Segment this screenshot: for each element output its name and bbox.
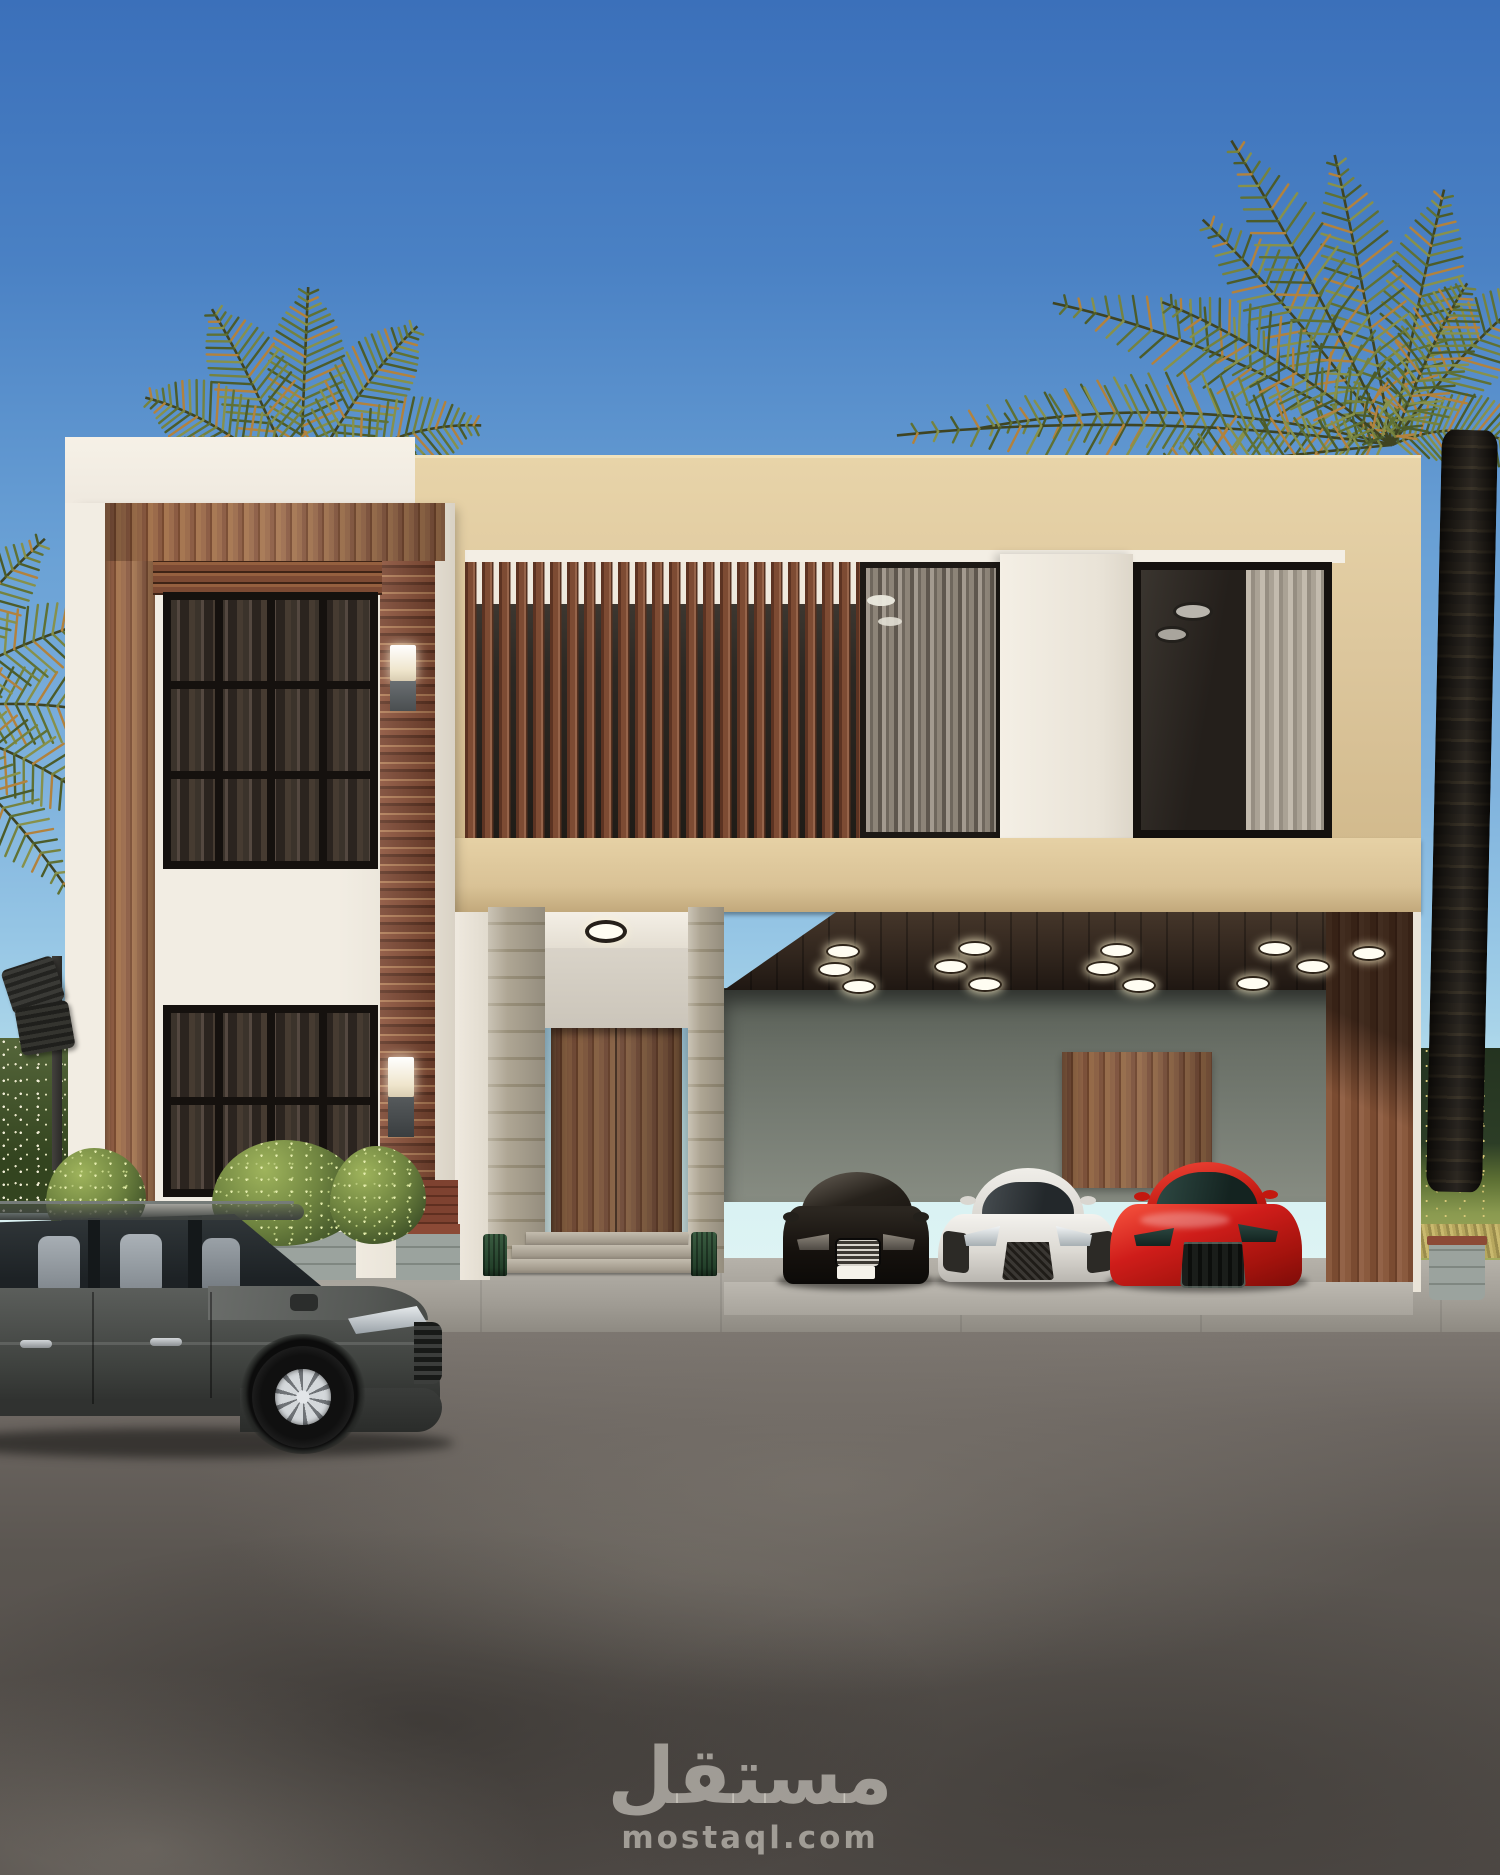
sconce-bracket [388, 1097, 414, 1137]
side-mirror [960, 1196, 976, 1205]
watermark: مستقل mostaql.com [0, 1738, 1500, 1856]
garage-ceiling-light [1122, 978, 1156, 993]
trash-bin-right [691, 1232, 717, 1276]
car-white [938, 1168, 1118, 1290]
sconce-bracket [390, 681, 416, 711]
bedroom-window [1133, 562, 1332, 838]
suv-seat [120, 1234, 162, 1296]
garage-ceiling-light [1086, 961, 1120, 976]
ceiling-lamp-glow [878, 617, 902, 626]
stone-planter [1427, 1236, 1487, 1300]
suv-door-line [92, 1292, 94, 1404]
suv-grille [414, 1322, 442, 1384]
side-mirror [1262, 1190, 1278, 1199]
suv-front-wheel [252, 1346, 354, 1448]
ceiling-lamp-glow [867, 595, 895, 606]
suv-roof [0, 1204, 304, 1220]
wood-slat-screen [465, 562, 862, 838]
entry-step-1 [526, 1232, 688, 1245]
suv-mirror [290, 1294, 318, 1311]
entrance-side-wall [455, 912, 490, 1280]
door-split-line [615, 1028, 617, 1232]
car-red [1110, 1162, 1302, 1291]
ceiling-lamp [1155, 626, 1189, 643]
side-mirror [913, 1212, 929, 1222]
garage-ceiling-light [1236, 976, 1270, 991]
car-grille [1180, 1242, 1246, 1288]
garage-ceiling-light [818, 962, 852, 977]
garage-ceiling-light [1296, 959, 1330, 974]
trash-bin-left [483, 1234, 507, 1276]
tower-window-upper [163, 592, 378, 869]
car-black [783, 1172, 929, 1290]
garage-ceiling-light [968, 977, 1002, 992]
stone-pillar-left [488, 907, 545, 1273]
wall-sconce [390, 645, 416, 681]
window-curtain [1246, 570, 1324, 830]
upper-floor [415, 455, 1421, 912]
license-plate [837, 1266, 875, 1279]
suv-shadow [0, 1428, 454, 1458]
garage-ceiling-light [958, 941, 992, 956]
wood-frame-top [105, 503, 445, 561]
car-grille [835, 1238, 881, 1268]
entry-step-3 [498, 1259, 712, 1273]
slat-band [153, 561, 382, 595]
planter-brick-rim [1427, 1236, 1487, 1245]
side-mirror [1134, 1192, 1150, 1201]
watermark-site-text: mostaql.com [0, 1820, 1500, 1856]
floor-slab-band [415, 838, 1421, 912]
entrance [455, 912, 724, 1280]
garage-ceiling-light [826, 944, 860, 959]
suv-door-line [210, 1292, 212, 1398]
garage-ceiling-light [1258, 941, 1292, 956]
garage [724, 912, 1413, 1315]
ceiling-lamp [1173, 602, 1213, 621]
suv-roof-rail [0, 1201, 294, 1204]
garage-ceiling-light [842, 979, 876, 994]
garage-ceiling-light [1352, 946, 1386, 961]
watermark-logo: مستقل [0, 1738, 1500, 1816]
suv-seat [38, 1236, 80, 1296]
garage-right-wood-wall [1326, 912, 1413, 1292]
hood-highlight [1140, 1212, 1230, 1228]
tower-parapet [65, 437, 415, 507]
garage-right-trim [1413, 912, 1421, 1292]
wall-sconce [388, 1057, 414, 1097]
architectural-render: مستقل mostaql.com [0, 0, 1500, 1875]
entrance-ceiling-light [585, 920, 627, 943]
entrance-recess [545, 912, 688, 1272]
car-grille [1002, 1242, 1054, 1280]
white-wall-strip [1000, 554, 1133, 844]
wood-frame-left [105, 561, 155, 1201]
garage-ceiling-light [1100, 943, 1134, 958]
parapet-top-edge [415, 455, 1421, 458]
entry-step-2 [512, 1245, 700, 1259]
side-mirror [1080, 1196, 1096, 1205]
suv [0, 1192, 450, 1460]
suv-wheel-rim [275, 1369, 331, 1425]
stone-pillar-right [688, 907, 724, 1273]
planter-body [1429, 1245, 1485, 1300]
suv-door-handle [150, 1338, 182, 1346]
street-lamp-head [14, 1000, 76, 1057]
side-mirror [783, 1212, 799, 1222]
garage-ceiling-light [934, 959, 968, 974]
suv-door-handle [20, 1340, 52, 1348]
recess-back-wall [545, 948, 688, 1028]
suv-crease [0, 1342, 432, 1345]
